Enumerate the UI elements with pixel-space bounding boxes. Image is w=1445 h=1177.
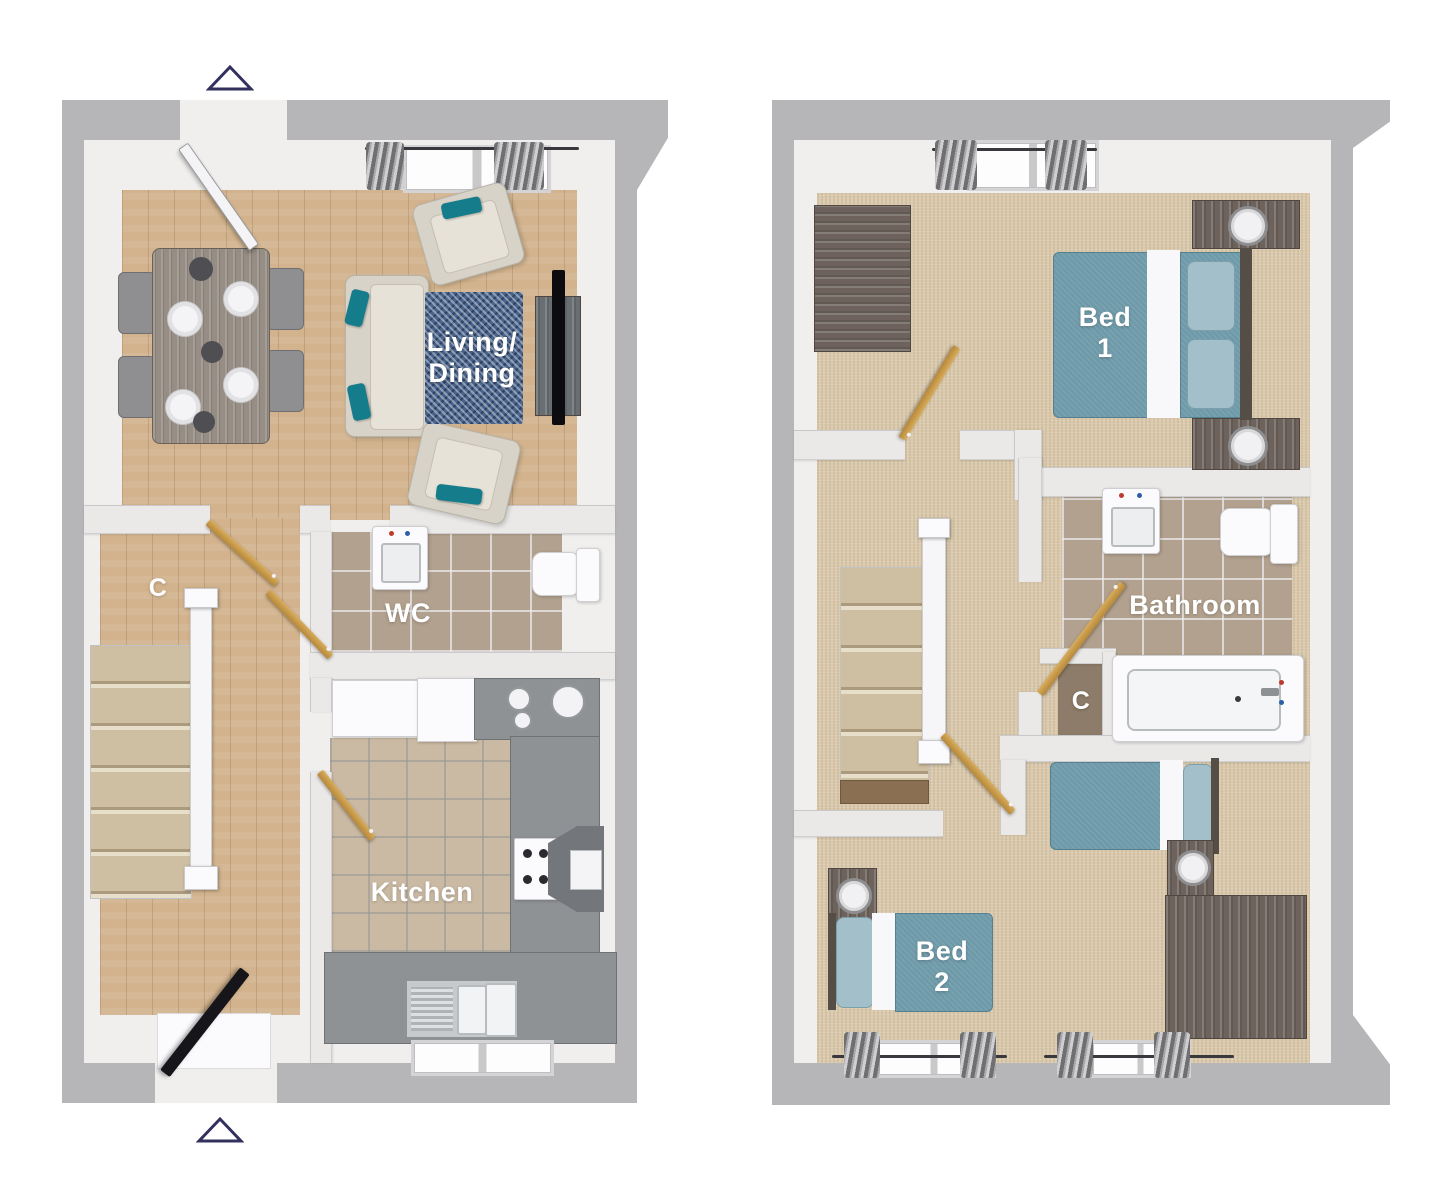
place-setting [193,411,215,433]
wall-wc-kitchen [310,652,615,680]
wc-sink [372,526,428,590]
bed1-curtain-right [1045,140,1087,190]
lamp [836,878,872,914]
first-wall-notch-bottom [1353,1015,1390,1105]
bath-tap [1261,688,1279,696]
wall-landing-bathroom-upper [1018,458,1042,582]
pillow [1187,261,1235,331]
hot-tap-icon [1279,680,1284,685]
ground-banister [190,600,212,874]
lamp [1175,850,1211,886]
kitchen-sink [406,980,518,1038]
living-dining-label-line2: Dining [392,358,552,389]
bed2-runner [872,913,895,1010]
bed1-headboard [1240,248,1252,420]
dining-chair [118,356,156,418]
first-cupboard-label: C [1066,686,1096,717]
place-setting [201,341,223,363]
extractor-panel [570,850,602,890]
bathtub [1112,655,1304,742]
drain-icon [1235,696,1241,702]
burner-icon [539,875,548,884]
draining-board [411,987,453,1031]
bed1-curtain-left [935,140,977,190]
bed1-label-line2: 1 [1065,333,1145,364]
hot-tap-icon [389,531,394,536]
dining-table [152,248,270,444]
sink-basin-small [457,985,487,1035]
curtain [844,1032,880,1078]
wc-floor [330,532,562,652]
dining-chair [266,268,304,330]
first-wall-notch-top [1353,100,1390,148]
hot-tap-icon [1119,493,1124,498]
wall-living-hall-mid [300,505,330,534]
north-marker-top-icon [206,64,254,92]
newel-post [918,518,950,538]
burner-icon [523,849,532,858]
burner-icon [539,849,548,858]
floor-plan-canvas: Living/ Dining WC Kitchen C [0,0,1445,1177]
front-doorway [180,100,287,140]
kitchen-floor [330,738,510,952]
bed1-runner [1147,250,1180,418]
wall-bed1-landing-left [794,430,905,460]
kitchen-label: Kitchen [362,877,482,908]
living-curtain-left [366,142,404,190]
stair-bottom-tread [840,780,929,804]
tv-screen [552,270,565,425]
dining-chair [118,272,156,334]
kettle [551,685,585,719]
pillow [1187,339,1235,409]
bathroom-label: Bathroom [1115,590,1275,621]
bed2-headboard [828,913,836,1010]
wall-kitchen-hall-upper [310,678,332,712]
north-marker-bottom-icon [196,1116,244,1144]
newel-post [184,588,218,608]
plate [223,281,259,317]
bed1-head [1180,252,1242,418]
bed2-label-line2: 2 [902,967,982,998]
kitchen-counter-top [474,678,600,740]
curtain [1057,1032,1093,1078]
cold-tap-icon [1137,493,1142,498]
wc-cistern [576,548,600,602]
bed2-label: Bed 2 [902,936,982,998]
bed1-label: Bed 1 [1065,302,1145,364]
ground-wall-notch [637,100,668,190]
single-bed-top-runner [1160,760,1183,850]
wc-label: WC [348,598,468,629]
newel-post [184,866,218,890]
bathtub-inner [1127,669,1281,731]
first-banister [922,527,946,744]
pot [513,711,532,730]
plate [167,301,203,337]
lamp [1228,426,1268,466]
wc-toilet [532,552,580,596]
plate [223,367,259,403]
place-setting [189,257,213,281]
curtain [960,1032,996,1078]
bathroom-basin [1111,507,1155,547]
kitchen-appliance-tall [417,678,477,742]
wall-living-hall-left [84,505,210,534]
wc-basin [381,543,421,583]
pillow [836,917,874,1008]
bathroom-toilet [1220,508,1274,556]
chest-of-drawers [1165,895,1307,1039]
lamp [1228,206,1268,246]
burner-icon [523,875,532,884]
ground-cupboard-label: C [143,573,173,604]
single-bed-top-mattress [1050,762,1162,850]
wardrobe [814,205,911,352]
dining-chair [266,350,304,412]
kitchen-window [411,1040,554,1076]
floor-plan-first: Bed 1 Bathroom C [772,100,1353,1105]
pot [507,687,531,711]
living-dining-label-line1: Living/ [392,327,552,358]
sink-basin-large [485,983,517,1037]
pillow [1183,764,1213,848]
first-staircase [840,567,929,802]
bed2-label-line1: Bed [902,936,982,967]
cold-tap-icon [1279,700,1284,705]
bed1-label-line1: Bed [1065,302,1145,333]
wall-bed1-bathroom [1040,467,1310,497]
living-dining-label: Living/ Dining [392,327,552,389]
curtain [1154,1032,1190,1078]
bathroom-cistern [1270,504,1298,564]
wall-landing-bed2 [794,810,943,837]
bathroom-sink [1102,488,1160,554]
teal-cushion [346,383,371,422]
cold-tap-icon [405,531,410,536]
ground-staircase [90,645,192,899]
floor-plan-ground: Living/ Dining WC Kitchen C [62,100,637,1103]
teal-cushion [344,288,370,327]
